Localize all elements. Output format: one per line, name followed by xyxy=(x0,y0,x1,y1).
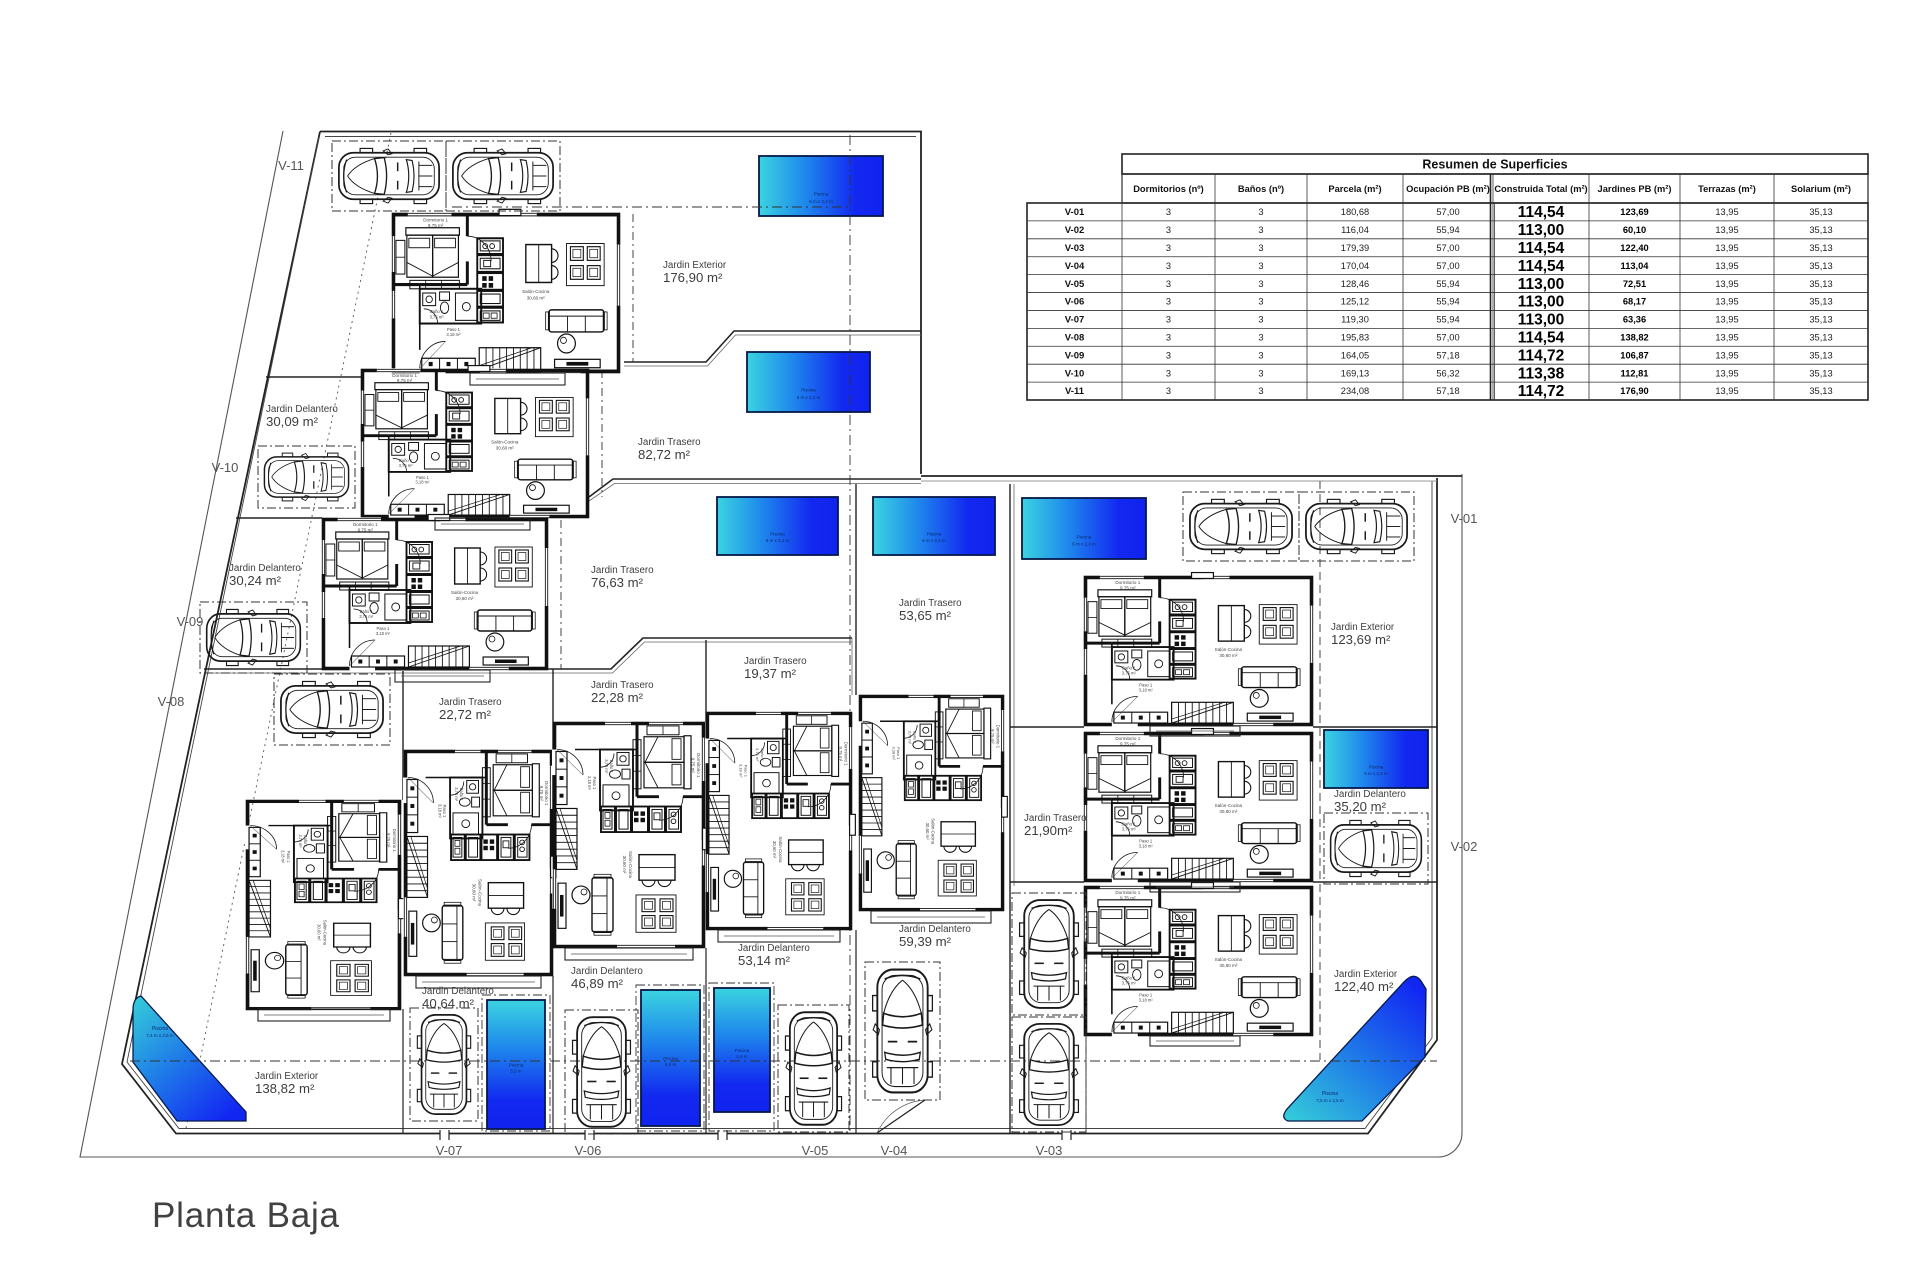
svg-text:123,69: 123,69 xyxy=(1620,207,1648,217)
svg-text:3: 3 xyxy=(1166,243,1171,253)
svg-text:180,68: 180,68 xyxy=(1341,207,1369,217)
svg-text:35,13: 35,13 xyxy=(1809,315,1832,325)
svg-text:55,94: 55,94 xyxy=(1436,279,1459,289)
svg-text:V-01: V-01 xyxy=(1065,207,1085,218)
svg-text:V-05: V-05 xyxy=(802,1143,829,1158)
svg-text:13,95: 13,95 xyxy=(1715,279,1738,289)
svg-text:13,95: 13,95 xyxy=(1715,261,1738,271)
svg-text:53,65 m²: 53,65 m² xyxy=(899,608,952,623)
svg-text:V-04: V-04 xyxy=(1065,261,1085,272)
svg-text:122,40 m²: 122,40 m² xyxy=(1334,979,1394,994)
svg-text:138,82: 138,82 xyxy=(1620,333,1648,343)
svg-text:V-10: V-10 xyxy=(212,460,239,475)
svg-text:59,39 m²: 59,39 m² xyxy=(899,934,952,949)
svg-text:195,83: 195,83 xyxy=(1341,333,1369,343)
svg-text:3: 3 xyxy=(1166,333,1171,343)
svg-text:22,72 m²: 22,72 m² xyxy=(439,707,492,722)
svg-text:Construida Total (m²): Construida Total (m²) xyxy=(1494,184,1587,194)
svg-text:V-03: V-03 xyxy=(1036,1143,1063,1158)
svg-text:125,12: 125,12 xyxy=(1341,297,1369,307)
svg-text:106,87: 106,87 xyxy=(1620,350,1648,360)
svg-text:6 m x 2,4 m: 6 m x 2,4 m xyxy=(1364,771,1388,776)
svg-text:55,94: 55,94 xyxy=(1436,225,1459,235)
svg-text:13,95: 13,95 xyxy=(1715,333,1738,343)
svg-text:76,63 m²: 76,63 m² xyxy=(591,575,644,590)
svg-text:35,13: 35,13 xyxy=(1809,350,1832,360)
svg-text:Jardines PB (m²): Jardines PB (m²) xyxy=(1598,184,1672,194)
svg-text:V-07: V-07 xyxy=(1065,315,1085,326)
svg-text:30,24 m²: 30,24 m² xyxy=(229,573,282,588)
svg-text:V-05: V-05 xyxy=(1065,279,1085,290)
svg-text:V-07: V-07 xyxy=(436,1143,463,1158)
svg-text:113,00: 113,00 xyxy=(1518,222,1565,239)
svg-text:Piscina: Piscina xyxy=(927,531,942,536)
svg-text:114,72: 114,72 xyxy=(1518,347,1565,364)
svg-text:122,40: 122,40 xyxy=(1620,243,1648,253)
svg-text:V-03: V-03 xyxy=(1065,243,1085,254)
svg-text:Piscina: Piscina xyxy=(1369,764,1384,769)
svg-text:13,95: 13,95 xyxy=(1715,386,1738,396)
svg-text:63,36: 63,36 xyxy=(1623,315,1646,325)
svg-text:35,13: 35,13 xyxy=(1809,207,1832,217)
svg-text:Piscina: Piscina xyxy=(770,531,785,536)
svg-text:V-06: V-06 xyxy=(1065,297,1085,308)
svg-text:3: 3 xyxy=(1258,333,1263,343)
svg-text:13,95: 13,95 xyxy=(1715,315,1738,325)
svg-text:V-10: V-10 xyxy=(1065,368,1085,379)
svg-text:114,54: 114,54 xyxy=(1518,204,1565,221)
svg-text:13,95: 13,95 xyxy=(1715,225,1738,235)
svg-text:V-08: V-08 xyxy=(1065,333,1085,344)
svg-text:114,54: 114,54 xyxy=(1518,258,1565,275)
svg-text:5,5 m: 5,5 m xyxy=(665,1062,677,1067)
svg-text:V-02: V-02 xyxy=(1065,225,1085,236)
svg-text:55,94: 55,94 xyxy=(1436,315,1459,325)
svg-text:57,00: 57,00 xyxy=(1436,261,1459,271)
svg-text:72,51: 72,51 xyxy=(1623,279,1646,289)
svg-text:56,32: 56,32 xyxy=(1436,368,1459,378)
svg-text:5,5 m: 5,5 m xyxy=(510,1069,522,1074)
svg-text:35,13: 35,13 xyxy=(1809,279,1832,289)
svg-text:3: 3 xyxy=(1166,297,1171,307)
svg-text:176,90: 176,90 xyxy=(1620,386,1648,396)
svg-text:35,20 m²: 35,20 m² xyxy=(1334,799,1387,814)
svg-text:35,13: 35,13 xyxy=(1809,386,1832,396)
svg-text:13,95: 13,95 xyxy=(1715,207,1738,217)
svg-text:7,5 m x 2,5 m: 7,5 m x 2,5 m xyxy=(1316,1098,1344,1103)
svg-text:113,00: 113,00 xyxy=(1518,294,1565,311)
svg-text:6 m x 2,4 m: 6 m x 2,4 m xyxy=(922,538,946,543)
svg-text:V-01: V-01 xyxy=(1451,511,1478,526)
svg-text:35,13: 35,13 xyxy=(1809,368,1832,378)
svg-text:179,39: 179,39 xyxy=(1341,243,1369,253)
svg-text:114,54: 114,54 xyxy=(1518,240,1565,257)
svg-text:3: 3 xyxy=(1258,207,1263,217)
svg-text:35,13: 35,13 xyxy=(1809,261,1832,271)
svg-text:68,17: 68,17 xyxy=(1623,297,1646,307)
svg-text:30,09 m²: 30,09 m² xyxy=(266,414,319,429)
svg-text:3: 3 xyxy=(1166,225,1171,235)
svg-text:113,04: 113,04 xyxy=(1621,261,1650,271)
svg-text:Parcela (m²): Parcela (m²) xyxy=(1328,184,1381,194)
svg-text:Piscina: Piscina xyxy=(1322,1091,1338,1097)
svg-text:Piscina: Piscina xyxy=(735,1048,750,1053)
svg-text:116,04: 116,04 xyxy=(1341,225,1369,235)
svg-text:13,95: 13,95 xyxy=(1715,368,1738,378)
svg-text:164,05: 164,05 xyxy=(1341,350,1369,360)
svg-text:V-02: V-02 xyxy=(1451,839,1478,854)
svg-text:170,04: 170,04 xyxy=(1341,261,1369,271)
svg-text:Piscina: Piscina xyxy=(814,192,829,197)
svg-text:53,14 m²: 53,14 m² xyxy=(738,953,791,968)
svg-text:V-09: V-09 xyxy=(1065,350,1085,361)
svg-text:3: 3 xyxy=(1258,279,1263,289)
svg-text:3: 3 xyxy=(1166,315,1171,325)
svg-text:13,95: 13,95 xyxy=(1715,350,1738,360)
svg-text:5,5 m: 5,5 m xyxy=(736,1054,748,1059)
svg-text:3: 3 xyxy=(1166,350,1171,360)
svg-text:123,69 m²: 123,69 m² xyxy=(1331,632,1391,647)
svg-text:82,72 m²: 82,72 m² xyxy=(638,447,691,462)
svg-text:57,00: 57,00 xyxy=(1436,243,1459,253)
svg-text:6 m x 2,4 m: 6 m x 2,4 m xyxy=(797,395,821,400)
svg-text:3: 3 xyxy=(1166,279,1171,289)
svg-text:7,4 m x 2,5 m: 7,4 m x 2,5 m xyxy=(146,1033,174,1038)
svg-text:6 m x 2,4 m: 6 m x 2,4 m xyxy=(766,538,790,543)
svg-text:3: 3 xyxy=(1166,368,1171,378)
svg-text:3: 3 xyxy=(1258,225,1263,235)
svg-text:Solarium (m²): Solarium (m²) xyxy=(1791,184,1851,194)
svg-text:3: 3 xyxy=(1166,386,1171,396)
svg-text:119,30: 119,30 xyxy=(1341,315,1369,325)
svg-text:35,13: 35,13 xyxy=(1809,333,1832,343)
svg-text:Piscina: Piscina xyxy=(663,1056,678,1061)
svg-text:6 m x 2,4 m: 6 m x 2,4 m xyxy=(809,199,833,204)
svg-text:3: 3 xyxy=(1258,368,1263,378)
svg-text:Piscina: Piscina xyxy=(509,1063,524,1068)
svg-text:Resumen de Superficies: Resumen de Superficies xyxy=(1422,158,1567,172)
svg-text:40,64 m²: 40,64 m² xyxy=(422,996,475,1011)
svg-text:35,13: 35,13 xyxy=(1809,243,1832,253)
svg-text:35,13: 35,13 xyxy=(1809,297,1832,307)
svg-text:Dormitorios (nº): Dormitorios (nº) xyxy=(1133,184,1204,194)
svg-text:112,81: 112,81 xyxy=(1621,368,1649,378)
svg-text:Ocupación PB (m²): Ocupación PB (m²) xyxy=(1406,184,1490,194)
svg-text:V-09: V-09 xyxy=(177,614,204,629)
svg-text:46,89 m²: 46,89 m² xyxy=(571,976,624,991)
svg-text:113,00: 113,00 xyxy=(1518,312,1565,329)
svg-text:138,82 m²: 138,82 m² xyxy=(255,1081,315,1096)
svg-text:234,08: 234,08 xyxy=(1341,386,1369,396)
svg-text:113,00: 113,00 xyxy=(1518,276,1565,293)
svg-text:169,13: 169,13 xyxy=(1341,368,1369,378)
svg-text:57,18: 57,18 xyxy=(1436,350,1459,360)
svg-text:Piscina: Piscina xyxy=(801,388,816,393)
svg-text:3: 3 xyxy=(1166,207,1171,217)
svg-text:57,00: 57,00 xyxy=(1436,207,1459,217)
svg-text:3: 3 xyxy=(1258,315,1263,325)
svg-text:V-08: V-08 xyxy=(158,694,185,709)
svg-text:113,38: 113,38 xyxy=(1518,365,1565,382)
svg-text:60,10: 60,10 xyxy=(1623,225,1646,235)
svg-text:114,72: 114,72 xyxy=(1518,383,1565,400)
svg-text:19,37 m²: 19,37 m² xyxy=(744,666,797,681)
svg-text:Planta Baja: Planta Baja xyxy=(152,1196,340,1235)
svg-text:128,46: 128,46 xyxy=(1341,279,1369,289)
svg-text:176,90 m²: 176,90 m² xyxy=(663,270,723,285)
svg-text:3: 3 xyxy=(1258,350,1263,360)
svg-text:3: 3 xyxy=(1166,261,1171,271)
svg-text:13,95: 13,95 xyxy=(1715,297,1738,307)
svg-text:114,54: 114,54 xyxy=(1518,330,1565,347)
svg-text:3: 3 xyxy=(1258,386,1263,396)
svg-text:Terrazas (m²): Terrazas (m²) xyxy=(1698,184,1756,194)
svg-text:21,90m²: 21,90m² xyxy=(1024,823,1073,838)
svg-text:55,94: 55,94 xyxy=(1436,297,1459,307)
svg-text:Piscina: Piscina xyxy=(1077,534,1092,539)
svg-text:22,28 m²: 22,28 m² xyxy=(591,690,644,705)
svg-text:Baños (nº): Baños (nº) xyxy=(1238,184,1284,194)
svg-text:V-06: V-06 xyxy=(575,1143,602,1158)
svg-text:3: 3 xyxy=(1258,243,1263,253)
svg-text:V-11: V-11 xyxy=(278,158,304,173)
svg-text:3: 3 xyxy=(1258,261,1263,271)
svg-text:57,18: 57,18 xyxy=(1436,386,1459,396)
svg-text:6 m x 2,4 m: 6 m x 2,4 m xyxy=(1072,542,1096,547)
svg-text:3: 3 xyxy=(1258,297,1263,307)
svg-text:57,00: 57,00 xyxy=(1436,333,1459,343)
svg-text:35,13: 35,13 xyxy=(1809,225,1832,235)
svg-text:V-11: V-11 xyxy=(1065,386,1085,397)
svg-text:V-04: V-04 xyxy=(881,1143,908,1158)
svg-text:Piscina: Piscina xyxy=(152,1026,168,1032)
svg-text:13,95: 13,95 xyxy=(1715,243,1738,253)
